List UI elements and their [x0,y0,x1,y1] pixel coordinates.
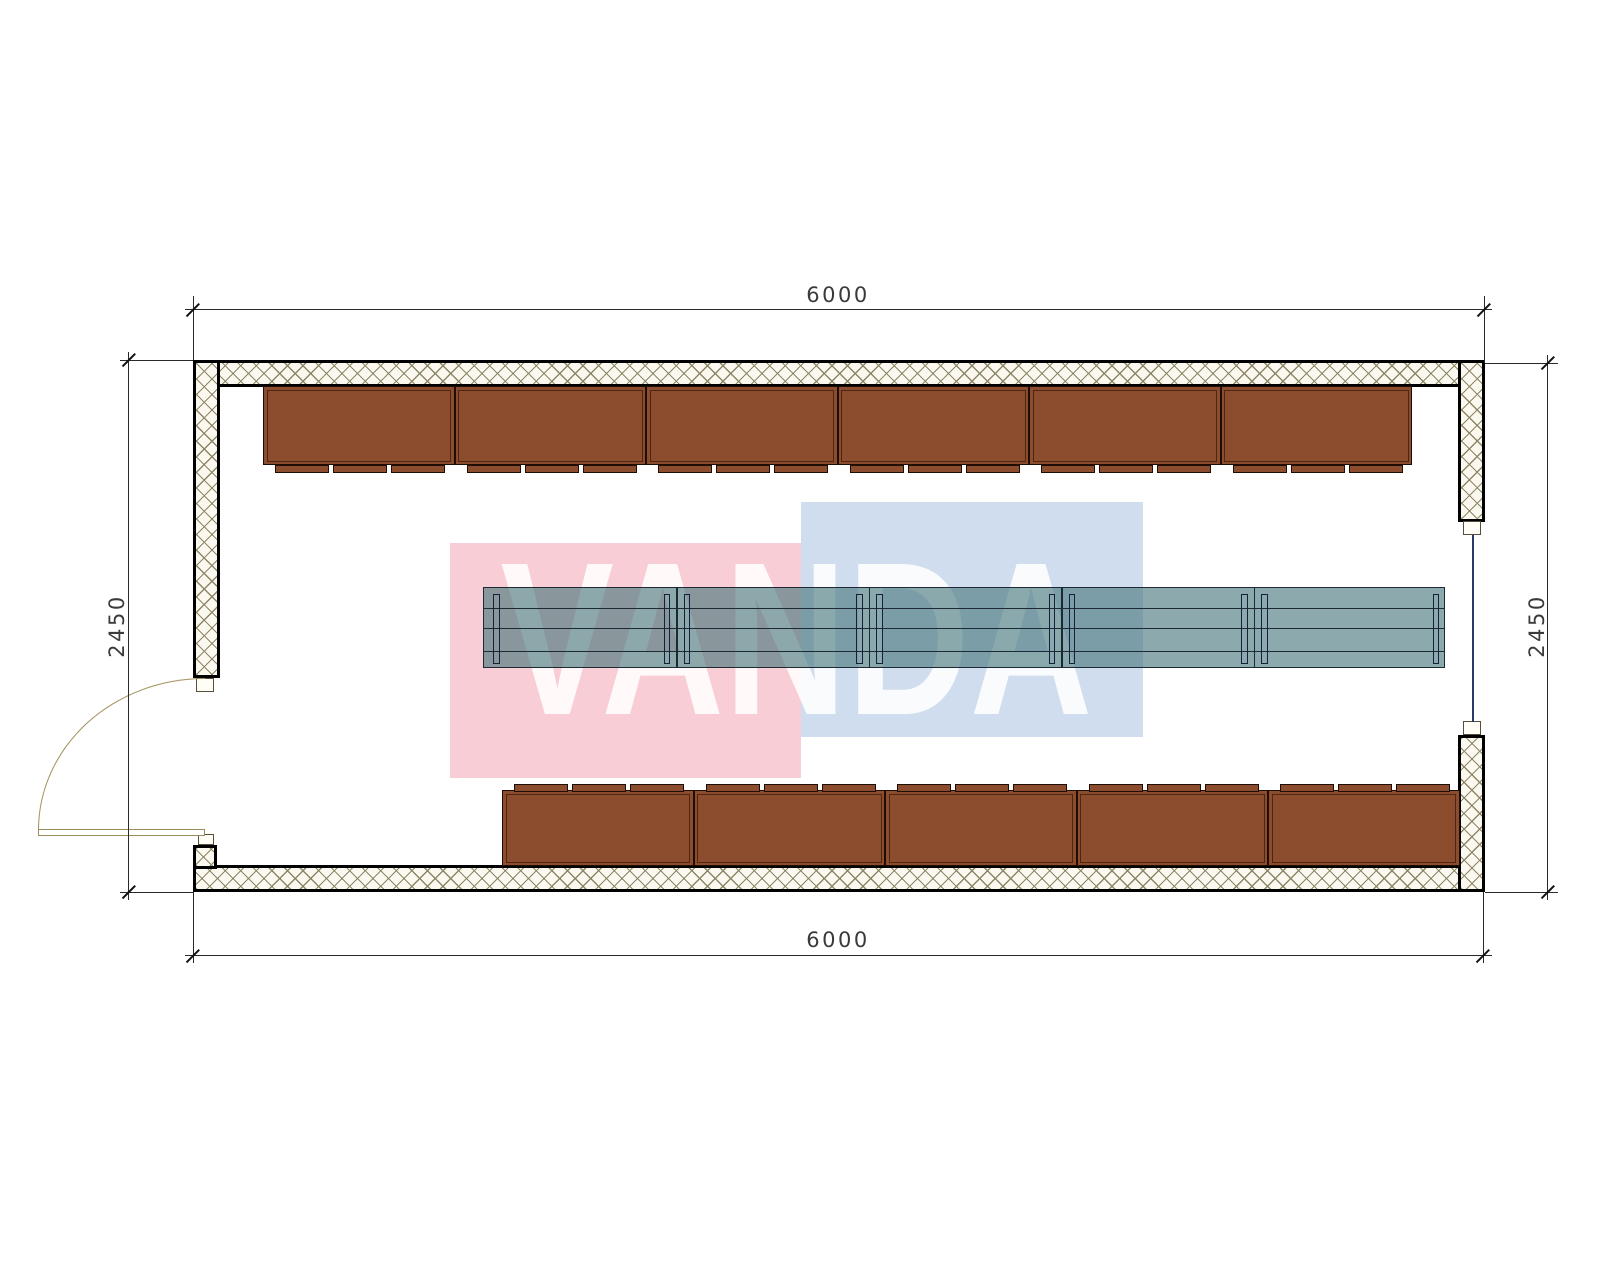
cabinet-inner-line [506,794,691,863]
wall-left [193,360,220,678]
table-section-divider [1061,588,1063,667]
cabinet-tab [764,784,818,792]
cabinet-inner-line [458,390,643,462]
top-cabinet-row [263,386,1412,474]
cabinet-tab [1349,465,1403,473]
door-leaf [38,829,205,836]
table-leg [664,594,671,664]
table-leg [1049,594,1056,664]
cabinet-tab [391,465,445,473]
table-leg [1069,594,1076,664]
cabinet-tab [1205,784,1259,792]
floor-plan-canvas: VANDA 6000 6000 [0,0,1600,1280]
cabinet-tab [774,465,828,473]
cabinet-inner-line [841,390,1026,462]
cabinet-tab [1013,784,1067,792]
cabinet-tab [1233,465,1287,473]
wall-top [193,360,1485,387]
cabinet-tab [275,465,329,473]
table-section-divider [676,588,678,667]
wall-right-upper [1458,360,1485,522]
cabinet-tab [1147,784,1201,792]
cabinet-tab [630,784,684,792]
cabinet-block [1221,386,1413,465]
cabinet-tab [966,465,1020,473]
wall-bottom [193,865,1485,892]
cabinet-inner-line [1080,794,1265,863]
cabinet-tab [333,465,387,473]
cabinet-tab [955,784,1009,792]
cabinet-tab [1291,465,1345,473]
cabinet-tab [850,465,904,473]
table-shelf-line [484,608,1444,609]
cabinet-tab [1157,465,1211,473]
cabinet-tab [525,465,579,473]
cabinet-tab [583,465,637,473]
cabinet-tab [716,465,770,473]
cabinet-block [1029,386,1221,465]
cabinet-tab [658,465,712,473]
table-shelf-line [484,628,1444,629]
wall-bottom-left-stub [193,845,217,869]
cabinet-block [263,386,455,465]
dim-label-left: 2450 [105,556,129,696]
table-leg [1241,594,1248,664]
table-shelf-line [484,651,1444,652]
dim-label-bottom: 6000 [768,928,908,952]
cabinet-inner-line [650,390,835,462]
cabinet-inner-line [1272,794,1457,863]
table-leg [493,594,500,664]
cabinet-block [502,790,694,866]
cabinet-tab [1089,784,1143,792]
wall-right-lower [1458,735,1485,892]
cabinet-block [838,386,1030,465]
dim-label-top: 6000 [768,283,908,307]
table-leg [856,594,863,664]
cabinet-block [1077,790,1269,866]
table-leg [684,594,691,664]
cabinet-inner-line [1224,390,1409,462]
window-jamb-lower [1463,721,1481,735]
cabinet-inner-line [267,390,452,462]
door-swing-arc [38,678,205,830]
table-section-divider [1254,588,1256,667]
cabinet-tab [1396,784,1450,792]
cabinet-block [455,386,647,465]
cabinet-block [885,790,1077,866]
cabinet-inner-line [1033,390,1218,462]
cabinet-tab [908,465,962,473]
dim-line [185,955,1492,956]
bottom-cabinet-row [502,782,1460,866]
cabinet-tab [1041,465,1095,473]
cabinet-tab [1099,465,1153,473]
cabinet-inner-line [889,794,1074,863]
cabinet-tab [514,784,568,792]
conference-table [483,587,1445,668]
cabinet-tab [822,784,876,792]
cabinet-block [1268,790,1460,866]
cabinet-tab [897,784,951,792]
dim-label-right: 2450 [1525,556,1549,696]
cabinet-tab [706,784,760,792]
window-jamb-upper [1463,521,1481,535]
dim-extension-line [193,296,194,360]
window-glazing-line [1472,535,1474,722]
table-leg [1261,594,1268,664]
cabinet-tab [572,784,626,792]
table-leg [1433,594,1440,664]
table-leg [876,594,883,664]
cabinet-inner-line [697,794,882,863]
table-section-divider [869,588,871,667]
cabinet-tab [1280,784,1334,792]
cabinet-block [646,386,838,465]
cabinet-tab [1338,784,1392,792]
cabinet-tab [467,465,521,473]
dim-line [185,309,1492,310]
cabinet-block [694,790,886,866]
